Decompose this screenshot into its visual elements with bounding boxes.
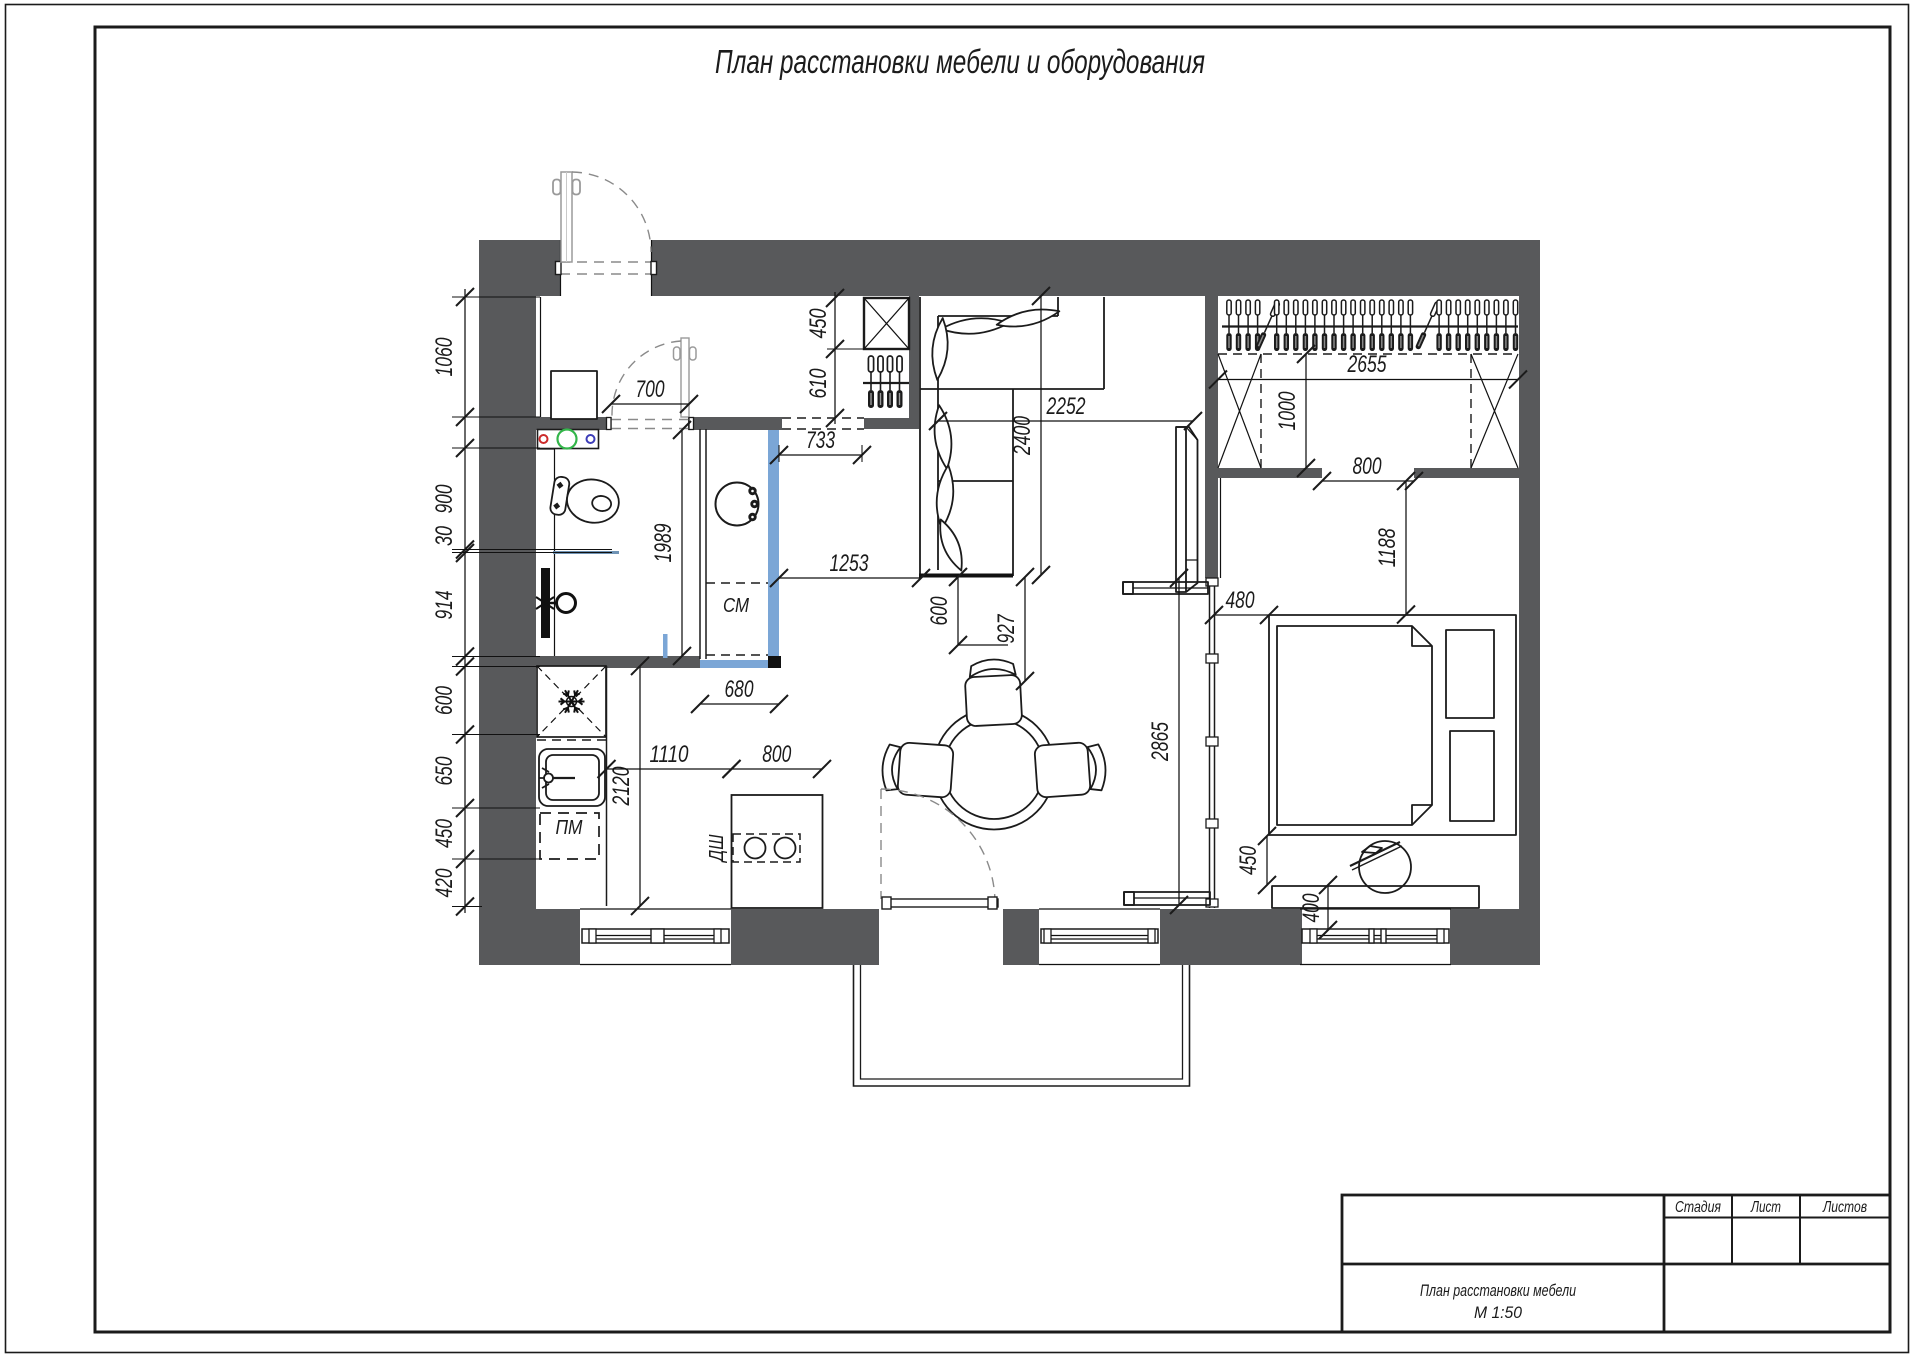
svg-text:2865: 2865	[1147, 722, 1174, 762]
svg-text:650: 650	[431, 756, 458, 785]
svg-text:2655: 2655	[1347, 351, 1387, 378]
svg-text:900: 900	[431, 484, 458, 513]
svg-text:800: 800	[762, 741, 791, 768]
svg-text:927: 927	[993, 613, 1020, 643]
svg-text:Стадия: Стадия	[1675, 1199, 1721, 1216]
svg-text:СМ: СМ	[723, 595, 749, 617]
svg-text:700: 700	[636, 376, 665, 403]
svg-text:733: 733	[806, 427, 835, 454]
svg-text:600: 600	[431, 686, 458, 715]
svg-text:480: 480	[1226, 587, 1255, 614]
svg-text:610: 610	[805, 368, 832, 398]
svg-text:400: 400	[1298, 893, 1325, 922]
svg-text:450: 450	[805, 308, 832, 338]
svg-text:ПМ: ПМ	[556, 817, 583, 839]
svg-text:420: 420	[431, 868, 458, 897]
svg-text:Лист: Лист	[1750, 1199, 1781, 1216]
svg-text:2120: 2120	[608, 766, 635, 806]
svg-text:ДШ: ДШ	[706, 834, 728, 863]
svg-text:914: 914	[431, 591, 458, 620]
svg-text:1188: 1188	[1374, 528, 1401, 567]
svg-text:1989: 1989	[650, 524, 677, 563]
svg-text:2252: 2252	[1046, 393, 1086, 420]
svg-text:600: 600	[926, 596, 953, 625]
svg-text:1110: 1110	[650, 741, 690, 768]
svg-text:2400: 2400	[1009, 416, 1036, 456]
svg-text:М 1:50: М 1:50	[1474, 1304, 1523, 1322]
svg-text:1253: 1253	[830, 550, 869, 577]
svg-text:450: 450	[431, 819, 458, 848]
svg-text:800: 800	[1353, 453, 1382, 480]
svg-text:680: 680	[725, 676, 754, 703]
svg-text:450: 450	[1235, 846, 1262, 875]
svg-text:30: 30	[431, 526, 458, 546]
svg-text:План расстановки мебели: План расстановки мебели	[1420, 1282, 1576, 1300]
svg-text:Листов: Листов	[1822, 1199, 1867, 1216]
svg-text:1060: 1060	[431, 337, 458, 376]
svg-text:План расстановки мебели и обор: План расстановки мебели и оборудования	[715, 43, 1205, 80]
svg-text:1000: 1000	[1274, 391, 1301, 430]
